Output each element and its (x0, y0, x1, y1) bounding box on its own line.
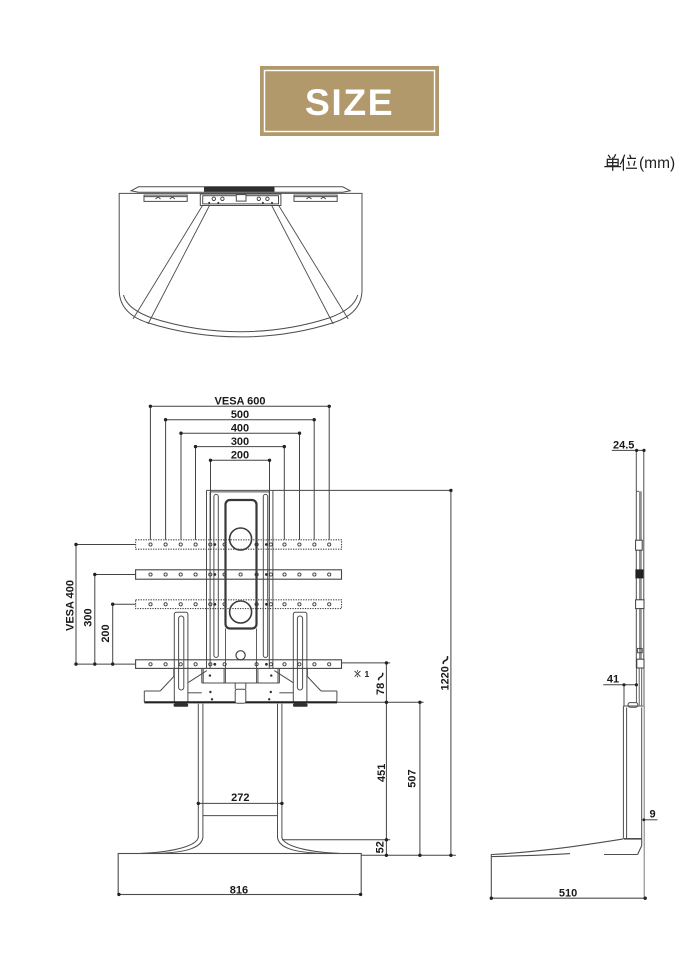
svg-text:816: 816 (230, 885, 248, 897)
svg-text:24.5: 24.5 (613, 439, 634, 451)
svg-text:1: 1 (365, 669, 370, 679)
svg-text:9: 9 (650, 809, 656, 821)
svg-text:52: 52 (375, 841, 387, 853)
svg-text:VESA 600: VESA 600 (215, 396, 266, 408)
svg-text:507: 507 (407, 769, 419, 787)
svg-text:272: 272 (231, 792, 249, 804)
svg-text:451: 451 (376, 764, 388, 782)
svg-text:500: 500 (231, 409, 249, 421)
svg-text:41: 41 (607, 673, 619, 685)
svg-text:1220: 1220 (440, 666, 452, 690)
svg-text:300: 300 (82, 608, 94, 626)
svg-text:400: 400 (231, 422, 249, 434)
svg-text:200: 200 (231, 450, 249, 462)
svg-text:78: 78 (375, 683, 387, 695)
svg-text:SIZE: SIZE (305, 81, 394, 123)
svg-text:300: 300 (231, 436, 249, 448)
svg-text:510: 510 (559, 887, 577, 899)
svg-text:200: 200 (100, 624, 112, 642)
svg-text:(mm): (mm) (639, 155, 675, 172)
svg-text:VESA 400: VESA 400 (64, 580, 76, 631)
